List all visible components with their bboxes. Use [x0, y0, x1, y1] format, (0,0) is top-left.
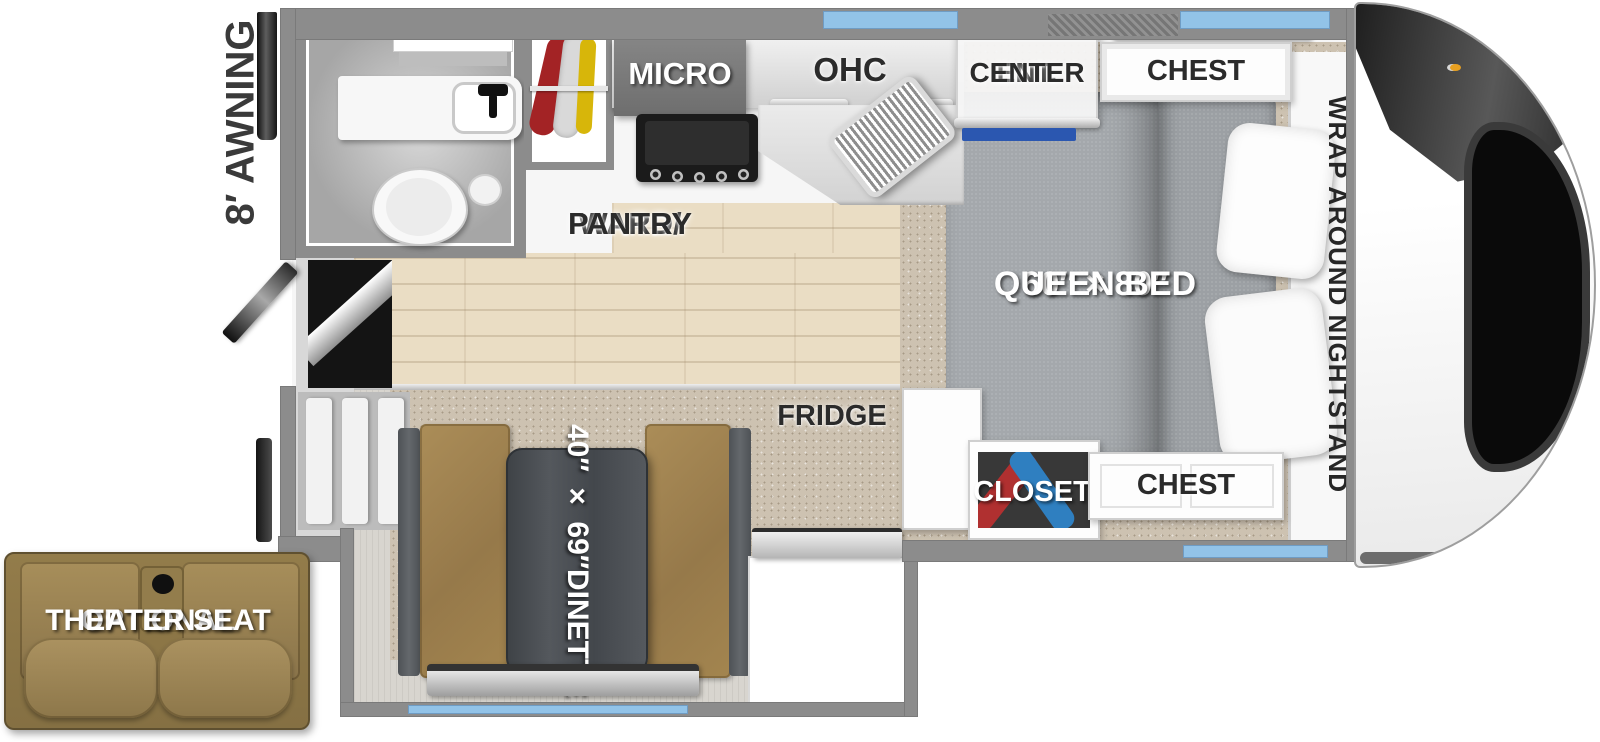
ent-center-label: ENT. CENTER	[956, 32, 1098, 114]
shower-head	[468, 174, 502, 206]
truck-cap	[1354, 2, 1596, 568]
dinette-label-dims: 40″ × 69″	[560, 424, 594, 569]
wood-floor-main	[354, 253, 904, 389]
cap-windshield	[1464, 122, 1590, 472]
toilet-lid	[386, 178, 452, 236]
window	[1183, 545, 1328, 558]
roof-vent-hatch	[1048, 14, 1178, 36]
dinette-bench-right	[645, 424, 731, 678]
theater-seat: OPTIONAL THEATER SEAT	[4, 552, 310, 730]
window	[408, 705, 688, 714]
wall-slide-left	[340, 528, 354, 716]
theater-seat-label: OPTIONAL THEATER SEAT	[14, 578, 302, 664]
entry-doorway	[308, 260, 392, 388]
ent-center-shelf	[954, 118, 1100, 128]
medicine-cabinet-shadow	[399, 52, 507, 66]
microwave-label: MICRO	[614, 48, 746, 100]
entry-door-leaf	[222, 261, 299, 344]
window	[1180, 11, 1330, 29]
dinette-bench-left	[420, 424, 510, 678]
floor-plan-canvas: 8′ AWNING 60″ × 80″ QUEEN BED WRAP AROUN…	[0, 0, 1600, 742]
dinette-label: 40″ × 69″ DINETTE	[512, 452, 642, 670]
floor-transition-strip	[354, 384, 904, 390]
wall-slide-right	[904, 540, 918, 717]
cap-marker-light	[1450, 64, 1461, 71]
entry-steps	[298, 392, 410, 530]
window	[823, 11, 958, 29]
dinette-step	[427, 664, 699, 696]
fridge-label: FRIDGE	[756, 396, 908, 438]
step-slat	[306, 398, 332, 524]
dinette-bench-frame-left	[398, 428, 420, 676]
stove-knob	[650, 169, 661, 180]
slideout-side-panel	[748, 556, 906, 704]
doorway-glass-reflection	[308, 260, 392, 366]
ohc-label: OHC	[790, 50, 910, 90]
bath-faucet-stem	[489, 94, 497, 118]
grab-handle-bar	[256, 438, 272, 542]
step-slat	[342, 398, 368, 524]
ward-pantry-label: WARD/ PANTRY	[545, 182, 715, 266]
awning-bar	[257, 12, 277, 140]
wardrobe-rod	[530, 86, 608, 91]
stove-knob	[738, 169, 749, 180]
stove-glass	[645, 121, 749, 165]
chest-bottom-label: CHEST	[1088, 456, 1284, 516]
tv-strip	[962, 128, 1076, 141]
stove-knob	[716, 171, 727, 182]
cap-bottom-trim	[1360, 552, 1510, 564]
stove-knob	[672, 171, 683, 182]
wall-left-upper	[280, 8, 296, 260]
queen-bed-label: 60″ × 80″ QUEEN BED	[965, 238, 1225, 330]
chest-top-label: CHEST	[1100, 46, 1292, 98]
entry-step-top	[752, 528, 902, 558]
